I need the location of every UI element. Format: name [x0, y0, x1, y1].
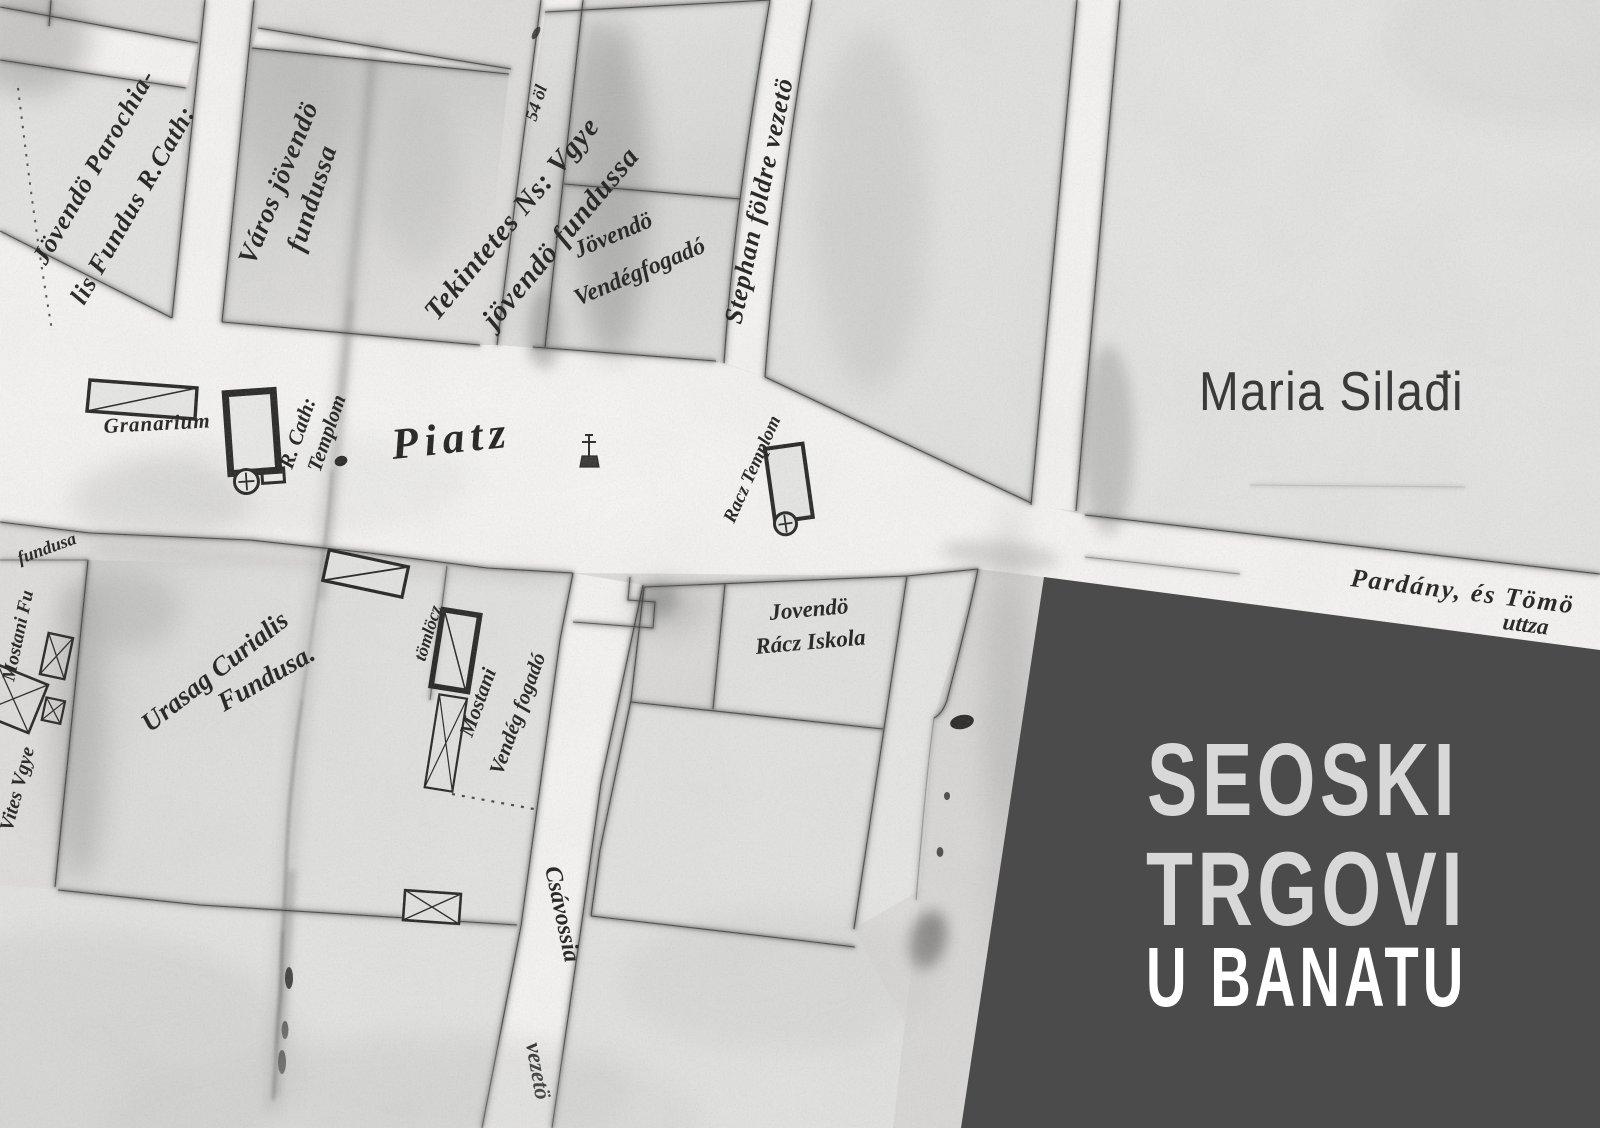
- svg-text:U BANATU: U BANATU: [1146, 931, 1467, 1025]
- svg-text:Maria Silađi: Maria Silađi: [1199, 360, 1464, 422]
- svg-text:SEOSKI: SEOSKI: [1147, 723, 1459, 838]
